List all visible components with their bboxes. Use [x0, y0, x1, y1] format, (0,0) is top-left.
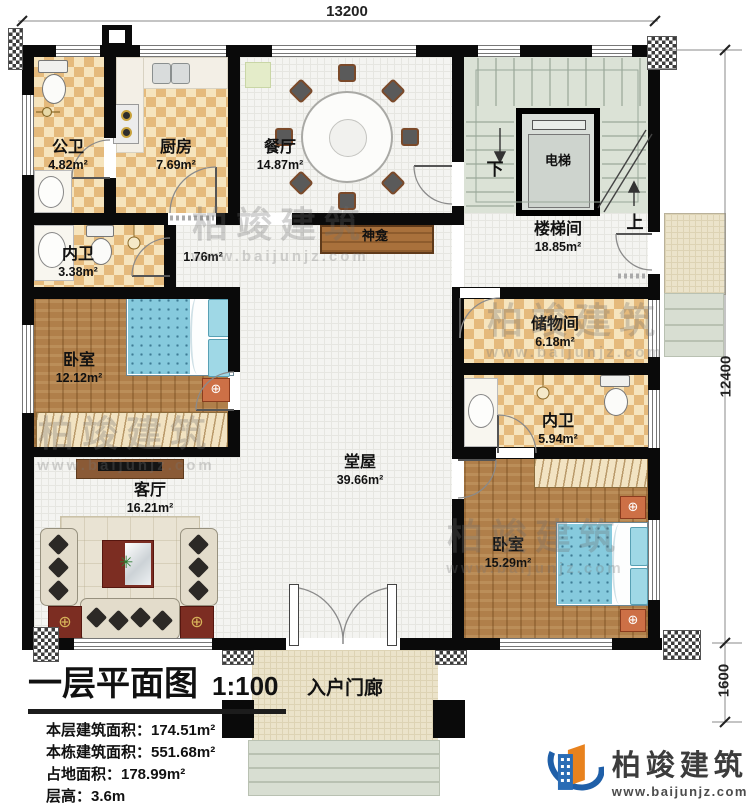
room-label-inner-bath-left: 内卫 3.38m² — [38, 246, 118, 280]
door-opening — [460, 288, 500, 298]
window — [56, 45, 100, 57]
wardrobe — [534, 458, 648, 488]
brand-name: 柏竣建筑 — [612, 742, 748, 784]
room-label-inner-bath-right: 内卫 5.94m² — [518, 413, 598, 447]
stat-footprint: 占地面积：178.99m² — [46, 764, 328, 786]
door-opening — [496, 448, 534, 458]
dining-pad — [245, 62, 271, 88]
stat-total-area: 本栋建筑面积：551.68m² — [46, 742, 328, 764]
stat-height: 层高：3.6m — [46, 786, 328, 808]
window — [478, 45, 520, 57]
toilet-icon — [600, 375, 630, 387]
window — [22, 325, 34, 413]
coffee-table: ✳ — [102, 540, 154, 588]
room-label-kitchen: 厨房 7.69m² — [136, 139, 216, 173]
window — [648, 520, 660, 600]
chair-icon — [338, 192, 356, 210]
wall — [104, 57, 116, 138]
room-label-storage: 储物间 6.18m² — [505, 316, 605, 350]
pillow-icon — [208, 299, 230, 337]
sofa-left — [40, 528, 78, 606]
corner-hatch — [435, 650, 467, 665]
elevator-door — [532, 120, 586, 130]
sofa-right — [180, 528, 218, 606]
wall — [452, 206, 464, 225]
wall — [34, 447, 240, 457]
brand-logo: 柏竣建筑 www.baijunjz.com — [538, 738, 748, 802]
bed-mattress — [128, 296, 190, 374]
sofa-main — [80, 598, 180, 640]
wall — [216, 213, 240, 225]
wall — [452, 45, 464, 162]
entry-door-leaf — [289, 584, 299, 646]
window — [272, 45, 416, 57]
stair-up-label: 上 — [622, 213, 648, 233]
title-underline — [28, 709, 286, 714]
floor-plan: ⊕ ✳ ⊕ ⊕ ⊕ ⊕ — [0, 0, 750, 809]
room-label-public-bath: 公卫 4.82m² — [28, 139, 108, 173]
stove-icon — [113, 104, 139, 144]
wall — [292, 213, 452, 225]
dimension-porch: 1600 — [716, 649, 733, 713]
room-label-main-hall: 堂屋 39.66m² — [317, 454, 403, 488]
wall — [452, 447, 660, 459]
bed-mattress — [558, 524, 612, 604]
pillow-icon — [208, 339, 230, 377]
side-step — [664, 293, 724, 309]
side-step — [664, 341, 724, 357]
burner-icon — [121, 110, 132, 121]
nightstand-icon: ⊕ — [620, 496, 646, 519]
sink-icon — [38, 176, 64, 208]
sink-icon — [468, 394, 494, 428]
pillow-icon — [630, 527, 648, 566]
room-label-dining: 餐厅 14.87m² — [238, 139, 322, 173]
plan-scale: 1:100 — [212, 671, 279, 702]
chair-icon — [338, 64, 356, 82]
dining-table-center — [329, 119, 367, 157]
tv-icon — [98, 462, 162, 471]
altar-label: 神龛 — [335, 228, 415, 243]
window — [648, 300, 660, 357]
room-label-living: 客厅 16.21m² — [110, 482, 190, 516]
porch-column — [433, 700, 465, 738]
nightstand-icon: ⊕ — [202, 378, 230, 402]
wall — [34, 287, 240, 299]
wall — [34, 213, 168, 225]
toilet-icon — [604, 388, 628, 416]
title-block: 一层平面图 1:100 本层建筑面积：174.51m² 本栋建筑面积：551.6… — [28, 656, 328, 808]
side-step — [664, 325, 724, 341]
room-label-elevator: 电梯 — [528, 153, 588, 168]
stair-down-label: 下 — [482, 160, 508, 180]
kitchen-sink-icon — [152, 63, 171, 84]
burner-icon — [121, 127, 132, 138]
brand-website: www.baijunjz.com — [612, 784, 748, 799]
room-floor-main-hall — [240, 225, 452, 638]
kitchen-sink-icon — [171, 63, 190, 84]
corridor-area-label: 1.76m² — [163, 250, 243, 265]
side-table: ⊕ — [180, 606, 214, 640]
brand-logo-icon — [538, 738, 604, 802]
window — [140, 45, 226, 57]
wall — [104, 178, 116, 213]
dimension-top: 13200 — [297, 3, 397, 20]
wall — [228, 57, 240, 213]
corner-hatch — [8, 28, 23, 70]
corner-hatch — [647, 36, 677, 70]
bed-blanket-fold — [612, 524, 630, 604]
wardrobe — [36, 412, 228, 448]
stat-floor-area: 本层建筑面积：174.51m² — [46, 720, 328, 742]
bed-blanket-fold — [190, 296, 208, 374]
side-step — [664, 309, 724, 325]
side-door-opening — [648, 232, 660, 274]
pillow-icon — [630, 568, 648, 605]
chair-icon — [401, 128, 419, 146]
dimension-side: 12400 — [718, 341, 735, 413]
room-label-bedroom-left: 卧室 12.12m² — [39, 352, 119, 386]
chimney-flue — [109, 30, 125, 43]
side-porch-floor — [664, 213, 726, 295]
toilet-icon — [42, 74, 66, 104]
wall — [452, 499, 464, 638]
nightstand-icon: ⊕ — [620, 609, 646, 632]
window — [592, 45, 632, 57]
wall — [228, 410, 240, 447]
window — [74, 638, 212, 650]
entry-door-leaf — [387, 584, 397, 646]
room-label-bedroom-right: 卧室 15.29m² — [468, 537, 548, 571]
plan-title: 一层平面图 — [28, 656, 198, 705]
wall — [452, 363, 660, 375]
room-label-stairwell: 楼梯间 18.85m² — [508, 221, 608, 255]
window — [648, 390, 660, 448]
toilet-icon — [86, 225, 114, 237]
wall — [228, 299, 240, 372]
plant-icon: ✳ — [119, 553, 133, 573]
corner-hatch — [663, 630, 701, 660]
entry-door-opening — [286, 638, 400, 650]
elevator-car — [528, 134, 590, 208]
toilet-icon — [38, 60, 68, 73]
window — [500, 638, 612, 650]
